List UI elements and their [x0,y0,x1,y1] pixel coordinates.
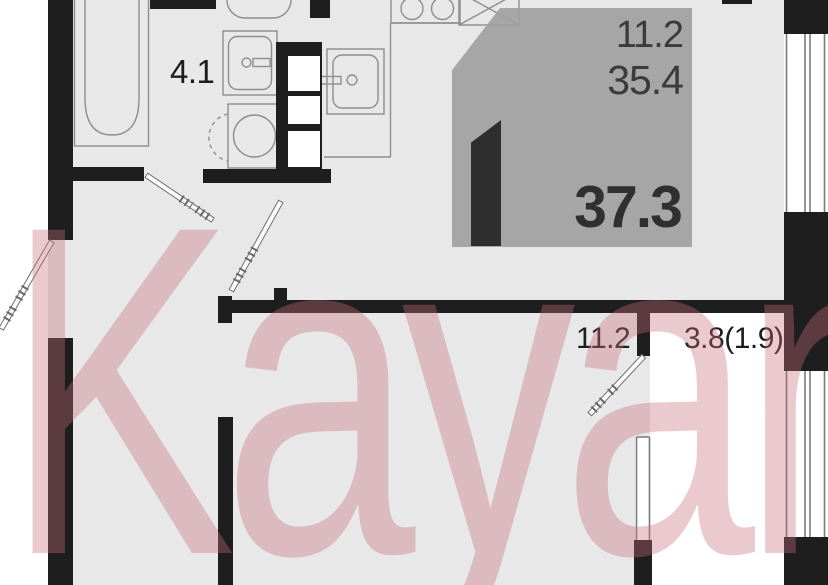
window-right-lower [787,371,825,537]
windows-layer [0,0,828,585]
label-bathroom-area: 4.1 [170,55,214,88]
balcony-glazing [637,437,650,540]
label-balcony-area: 3.8(1.9) [684,324,783,354]
window-right-upper [787,34,825,212]
label-room-area: 11.2 [576,324,630,354]
floor-plan: 11.2 35.4 37.3 [0,0,828,585]
